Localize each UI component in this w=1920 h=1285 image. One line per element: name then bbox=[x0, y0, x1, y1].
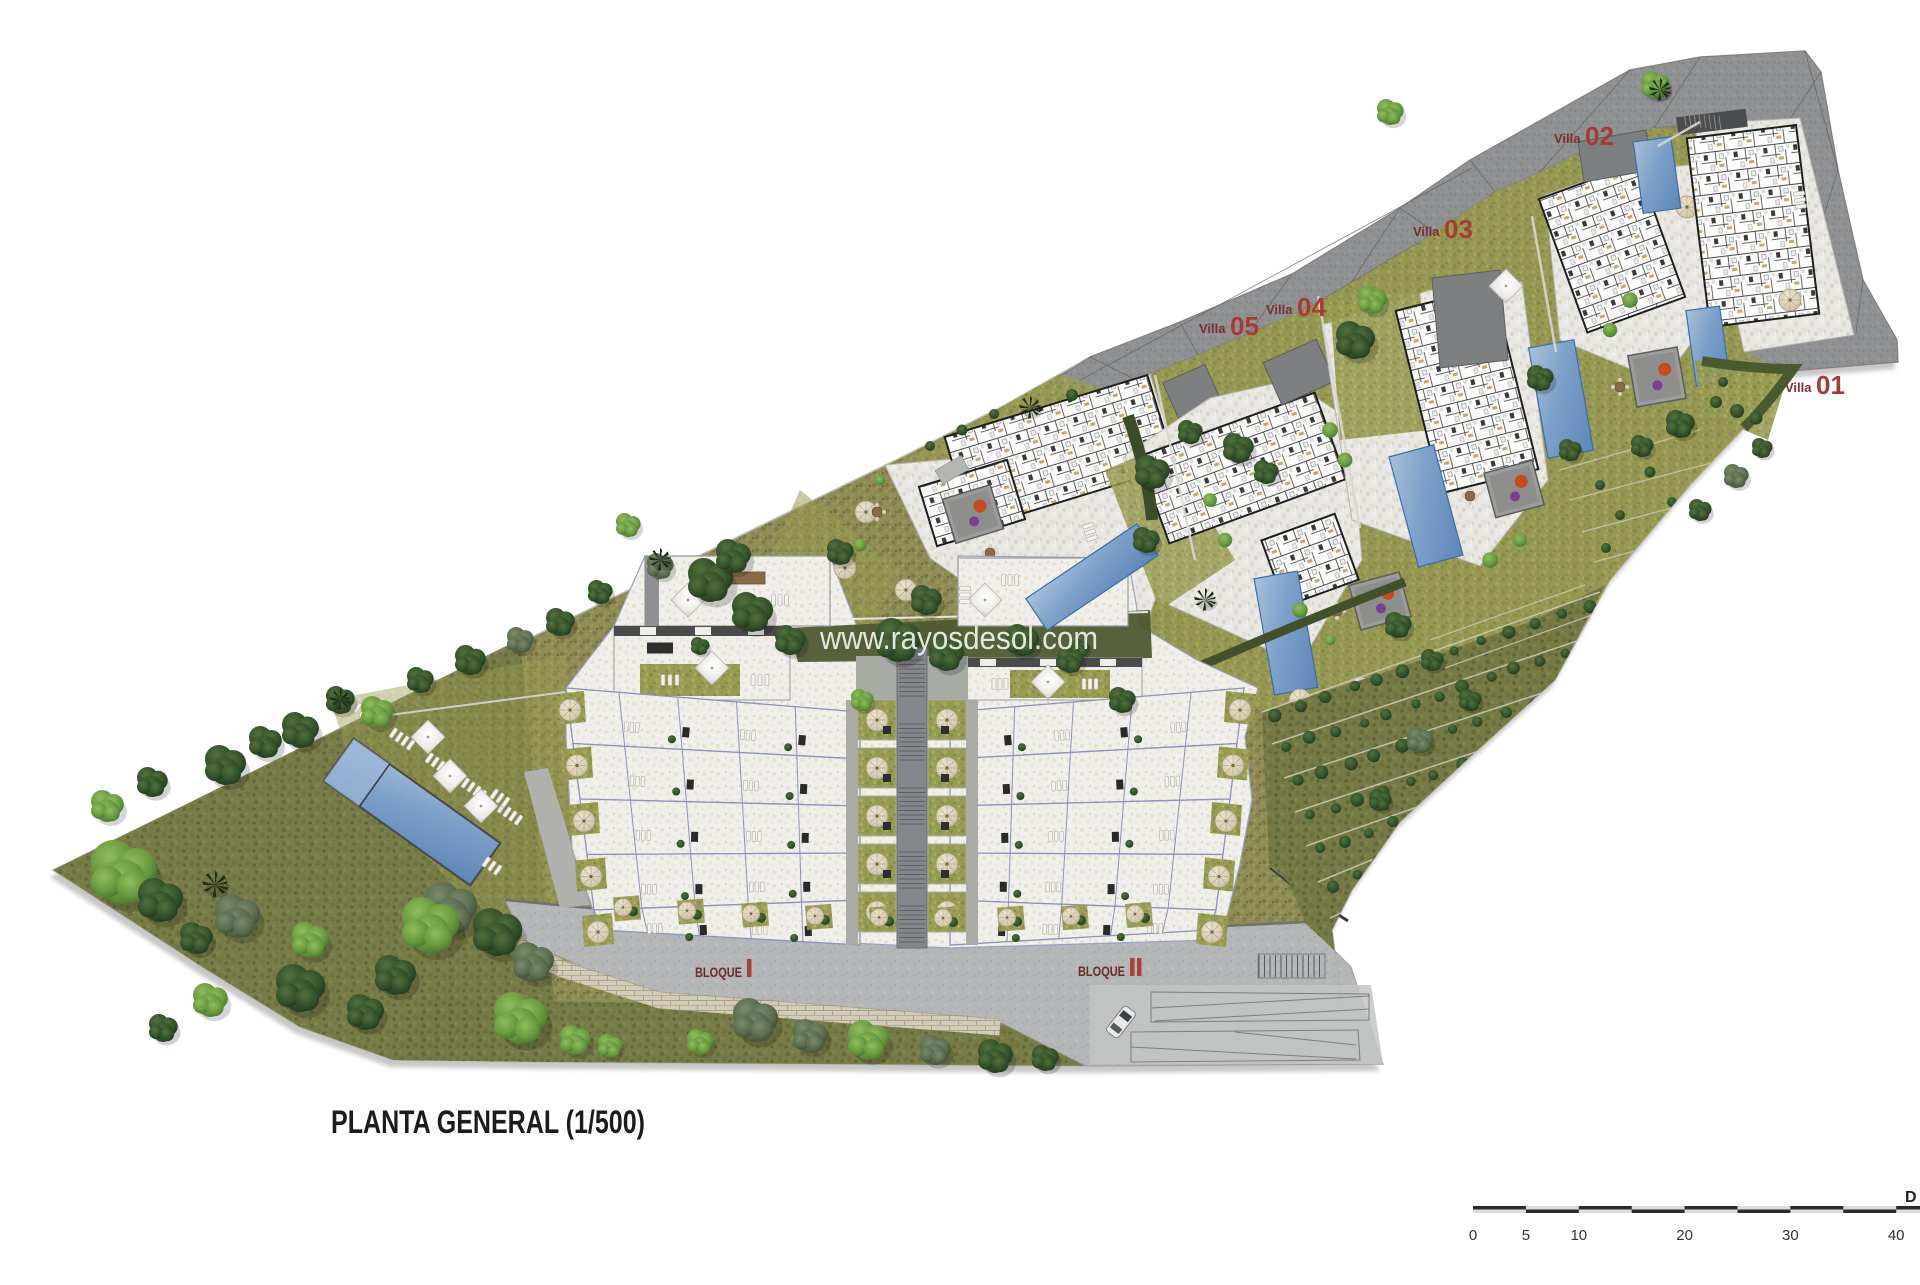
svg-text:05: 05 bbox=[1230, 311, 1259, 341]
svg-text:www.rayosdesol.com: www.rayosdesol.com bbox=[819, 620, 1098, 656]
svg-text:5: 5 bbox=[1522, 1227, 1530, 1244]
svg-text:Villa: Villa bbox=[1199, 321, 1226, 336]
svg-text:10: 10 bbox=[1570, 1227, 1587, 1244]
svg-text:PLANTA GENERAL (1/500): PLANTA GENERAL (1/500) bbox=[331, 1104, 645, 1140]
svg-text:0: 0 bbox=[1469, 1227, 1477, 1244]
svg-text:40: 40 bbox=[1888, 1227, 1905, 1244]
svg-text:D: D bbox=[1905, 1189, 1917, 1206]
svg-text:BLOQUE: BLOQUE bbox=[1078, 963, 1125, 979]
svg-text:Villa: Villa bbox=[1785, 380, 1812, 395]
svg-text:04: 04 bbox=[1297, 292, 1326, 322]
svg-text:30: 30 bbox=[1782, 1227, 1799, 1244]
svg-text:Villa: Villa bbox=[1413, 224, 1440, 239]
svg-text:02: 02 bbox=[1585, 121, 1614, 151]
svg-text:20: 20 bbox=[1676, 1227, 1693, 1244]
svg-text:03: 03 bbox=[1444, 214, 1473, 244]
svg-text:BLOQUE: BLOQUE bbox=[695, 964, 742, 980]
svg-text:Villa: Villa bbox=[1266, 302, 1293, 317]
svg-text:01: 01 bbox=[1816, 370, 1845, 400]
svg-text:Villa: Villa bbox=[1554, 131, 1581, 146]
